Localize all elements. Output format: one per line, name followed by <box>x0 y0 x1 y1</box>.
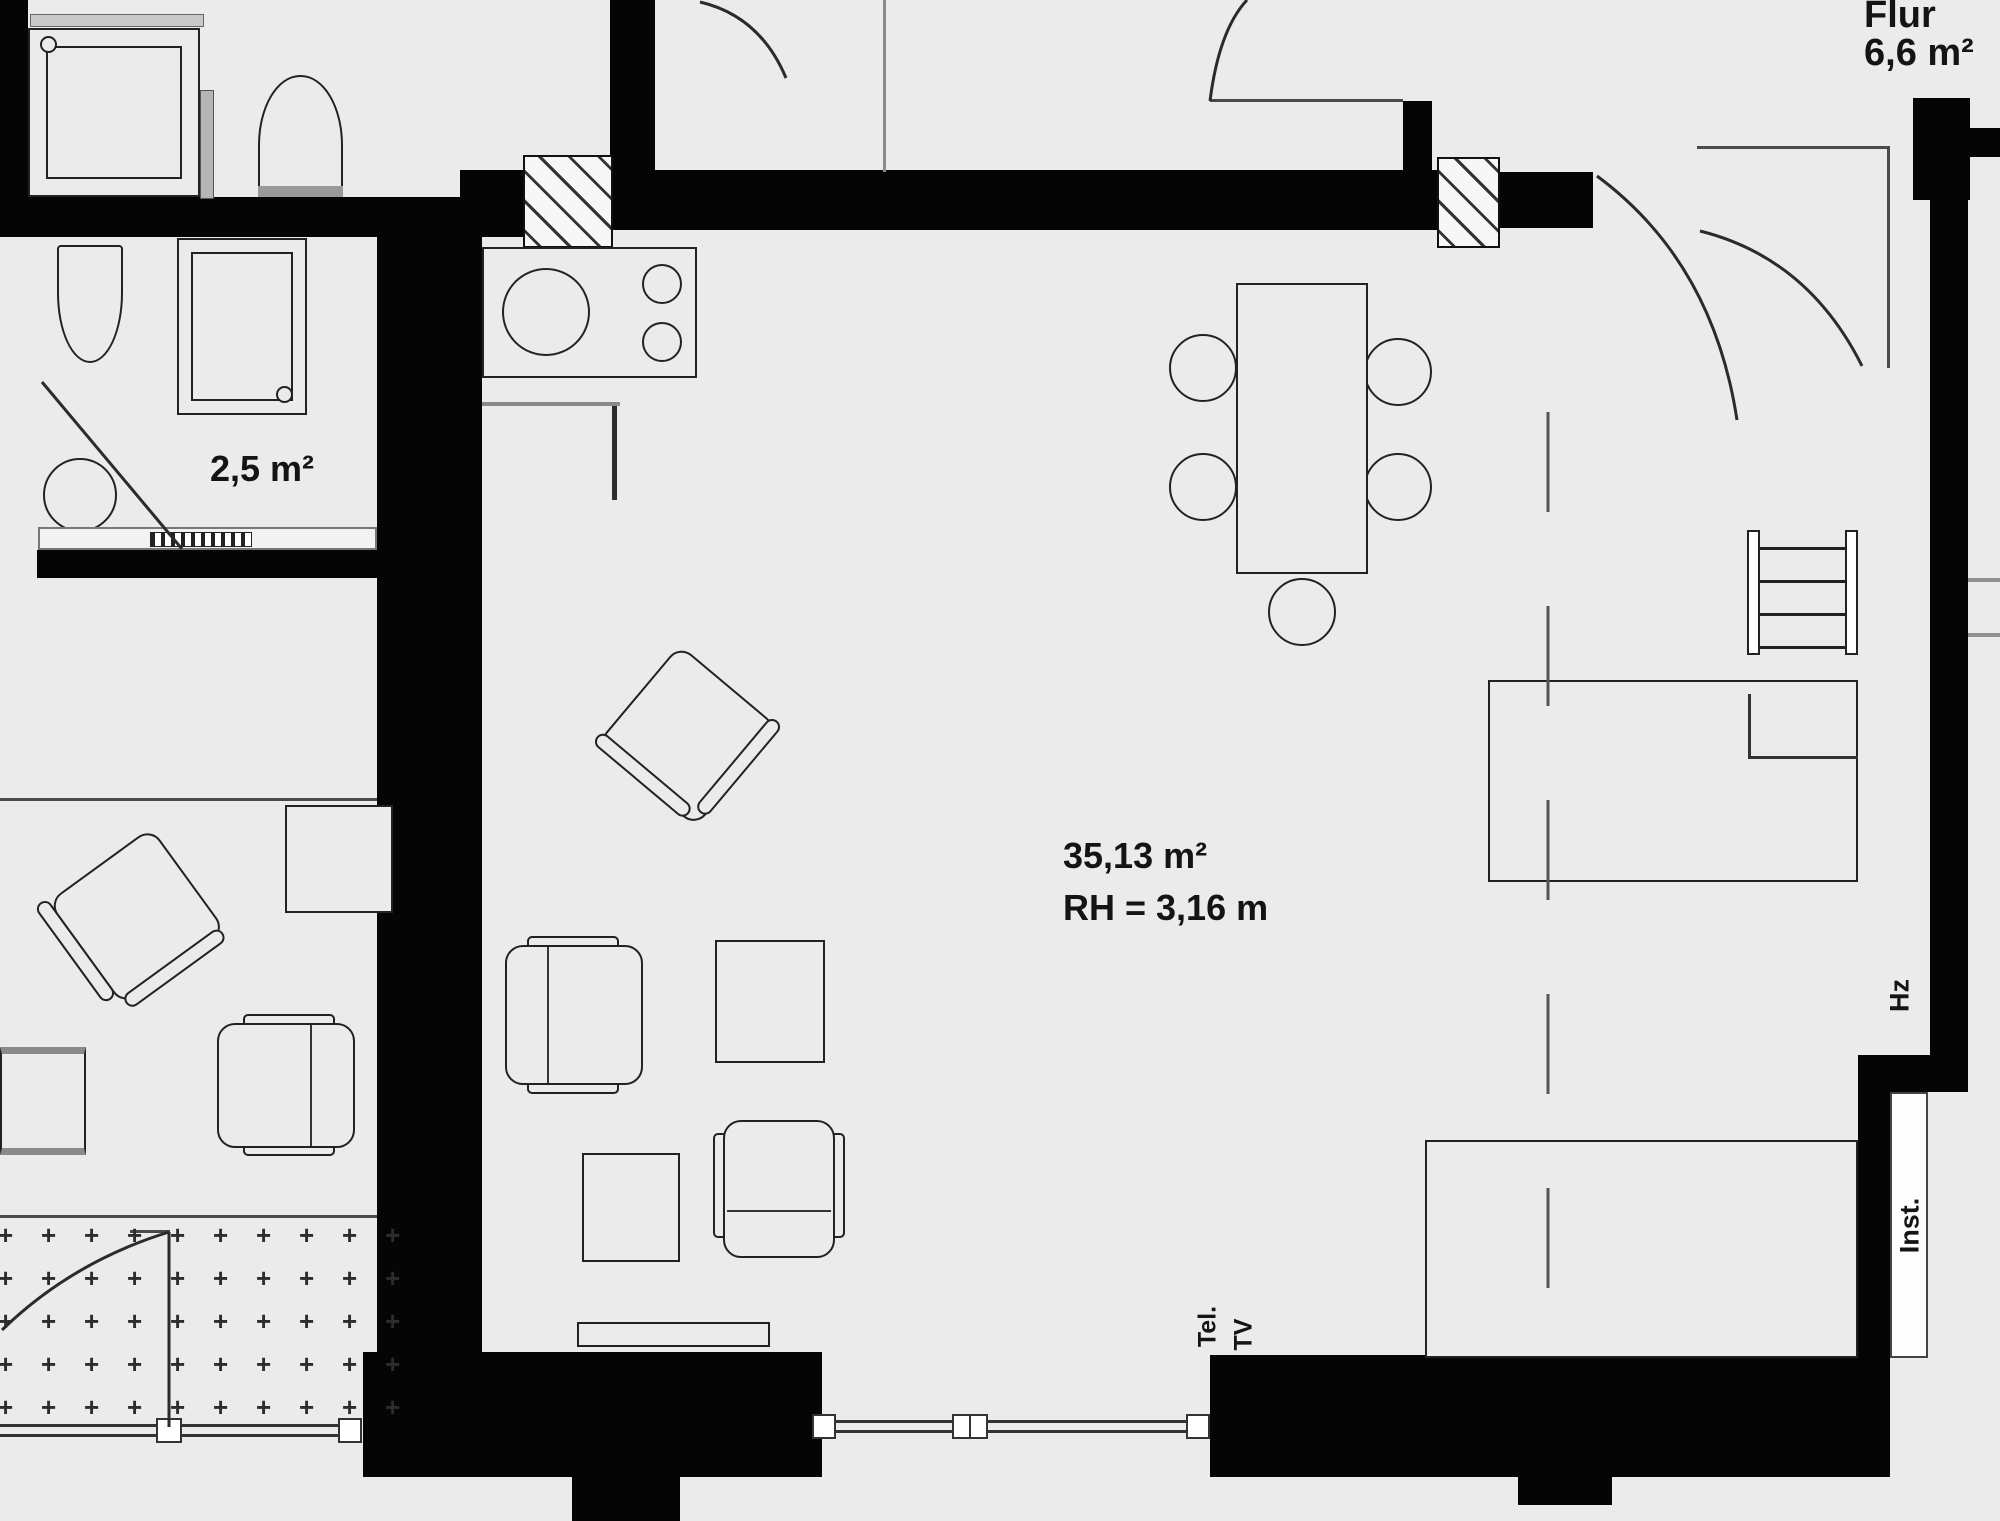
balcony-plus-mark: + <box>170 1308 185 1334</box>
wall-top-door-pier <box>1403 101 1432 172</box>
balcony-plus-mark: + <box>170 1394 185 1420</box>
balcony-plus-mark: + <box>41 1222 56 1248</box>
dining-chair <box>1169 334 1237 402</box>
room-label-living-area: 35,13 m² <box>1063 835 1207 877</box>
balcony-top-line <box>0 1215 377 1218</box>
wall-right-jog <box>1858 1055 1968 1092</box>
balcony-plus-mark: + <box>342 1394 357 1420</box>
dining-chair <box>1364 338 1432 406</box>
balcony-plus-mark: + <box>127 1351 142 1377</box>
balcony-plus-mark: + <box>41 1265 56 1291</box>
balcony-plus-mark: + <box>127 1222 142 1248</box>
balcony-plus-mark: + <box>84 1394 99 1420</box>
door-arc-upper-left-room <box>700 2 786 78</box>
balcony-plus-mark: + <box>213 1351 228 1377</box>
dining-chair <box>1169 453 1237 521</box>
balcony-plus-mark: + <box>84 1265 99 1291</box>
wall-left-edge <box>0 0 28 197</box>
toilet <box>57 245 123 363</box>
washbasin <box>43 458 117 532</box>
balcony-plus-mark: + <box>170 1351 185 1377</box>
balcony-plus-mark: + <box>299 1222 314 1248</box>
label-telephone: Tel. <box>1194 1301 1223 1353</box>
door-arc-top-room <box>1210 0 1247 101</box>
wall-bottom-step <box>1518 1477 1612 1505</box>
shower-tray-inner <box>46 46 182 179</box>
balcony-plus-mark: + <box>342 1265 357 1291</box>
balcony-plus-mark: + <box>170 1222 185 1248</box>
balcony-plus-mark: + <box>213 1265 228 1291</box>
balcony-plus-mark: + <box>299 1351 314 1377</box>
balcony-plus-mark: + <box>0 1351 13 1377</box>
window-mullion <box>1186 1414 1210 1439</box>
wall-flur-corner-block <box>1913 98 1970 200</box>
balcony-plus-mark: + <box>0 1222 13 1248</box>
balcony-plus-mark: + <box>41 1394 56 1420</box>
balcony-plus-mark: + <box>256 1265 271 1291</box>
label-heating: Hz <box>1885 974 1916 1018</box>
wall-shaft-left <box>1858 1092 1890 1358</box>
left-room-divider <box>0 798 377 801</box>
sideboard <box>577 1322 770 1347</box>
desk <box>285 805 393 913</box>
dining-chair <box>1364 453 1432 521</box>
shower-drain-icon <box>40 36 57 53</box>
door-arc-flur-living <box>1597 176 1737 420</box>
balcony-plus-mark: + <box>342 1351 357 1377</box>
balcony-plus-mark: + <box>342 1308 357 1334</box>
bed-headboard-line <box>1748 694 1751 758</box>
wall-kitchen-main <box>613 170 1437 230</box>
balcony-plus-mark: + <box>256 1394 271 1420</box>
balcony-floor-pattern: ++++++++++++++++++++++++++++++++++++++++… <box>0 1222 390 1422</box>
balcony-plus-mark: + <box>213 1222 228 1248</box>
balcony-plus-mark: + <box>0 1265 13 1291</box>
room-label-hall-area: 6,6 m² <box>1864 32 1974 75</box>
flur-room-line-v <box>1887 146 1890 368</box>
wall-flur-left <box>1500 172 1593 228</box>
dining-chair <box>1268 578 1336 646</box>
balcony-plus-mark: + <box>256 1308 271 1334</box>
flur-room-line-h <box>1697 146 1889 149</box>
shower-tray-inner <box>191 252 293 401</box>
window-mullion <box>812 1414 836 1439</box>
room-label-living-height: RH = 3,16 m <box>1063 887 1268 929</box>
label-tv: TV <box>1230 1309 1259 1361</box>
table <box>0 1047 86 1155</box>
balcony-plus-mark: + <box>256 1351 271 1377</box>
room-label-bath-area: 2,5 m² <box>210 448 314 490</box>
top-door-chord <box>1210 99 1403 102</box>
dining-table <box>1236 283 1368 574</box>
balcony-plus-mark: + <box>127 1265 142 1291</box>
balcony-plus-mark: + <box>127 1308 142 1334</box>
balcony-plus-mark: + <box>342 1222 357 1248</box>
bed <box>1425 1140 1858 1358</box>
window-bottom-center <box>822 1420 1210 1433</box>
wall-bottom-pier <box>572 1477 680 1521</box>
balcony-plus-mark: + <box>385 1351 400 1377</box>
balcony-plus-mark: + <box>84 1308 99 1334</box>
armchair-rotated <box>575 627 800 852</box>
balcony-plus-mark: + <box>84 1351 99 1377</box>
shower-drain-icon <box>276 386 293 403</box>
balcony-plus-mark: + <box>0 1394 13 1420</box>
wall-kitchen-left <box>460 170 523 230</box>
bed <box>1488 680 1858 882</box>
floor-plan: ++++++++++++++++++++++++++++++++++++++++… <box>0 0 2000 1521</box>
shower-screen <box>30 14 204 27</box>
wall-bottom-right <box>1210 1355 1890 1477</box>
balcony-plus-mark: + <box>84 1222 99 1248</box>
label-installation: Inst. <box>1895 1198 1926 1254</box>
window-mullion-double <box>952 1414 988 1439</box>
balcony-plus-mark: + <box>213 1308 228 1334</box>
armchair-rotated <box>26 806 249 1029</box>
balcony-plus-mark: + <box>299 1265 314 1291</box>
top-room-partition <box>883 0 886 172</box>
wall-bottom-left <box>363 1352 822 1477</box>
balcony-plus-mark: + <box>0 1308 13 1334</box>
balcony-plus-mark: + <box>127 1394 142 1420</box>
wall-right-outer <box>1930 200 1968 1058</box>
outside-line-2 <box>1968 633 2000 637</box>
bed-headboard-line <box>1748 756 1858 759</box>
side-table <box>582 1153 680 1262</box>
toilet-base <box>258 186 343 197</box>
balcony-plus-mark: + <box>385 1394 400 1420</box>
radiator <box>150 532 252 547</box>
balcony-plus-mark: + <box>385 1308 400 1334</box>
balcony-plus-mark: + <box>299 1308 314 1334</box>
balcony-plus-mark: + <box>213 1394 228 1420</box>
balcony-plus-mark: + <box>299 1394 314 1420</box>
wall-bath-bottom <box>37 550 377 578</box>
balcony-plus-mark: + <box>385 1265 400 1291</box>
burner-small <box>642 322 682 362</box>
balcony-plus-mark: + <box>385 1222 400 1248</box>
toilet <box>258 75 343 197</box>
balcony-plus-mark: + <box>170 1265 185 1291</box>
kitchen-jamb-v <box>612 406 617 500</box>
balcony-plus-mark: + <box>41 1351 56 1377</box>
hatched-pier-flur <box>1437 157 1500 248</box>
kitchen-jamb-h <box>482 402 620 406</box>
door-arc-flur-right <box>1700 231 1862 366</box>
wall-flur-arm <box>1968 128 2000 157</box>
outside-line-1 <box>1968 578 2000 582</box>
burner-small <box>642 264 682 304</box>
side-table <box>715 940 825 1063</box>
shower-partition <box>200 90 214 199</box>
balcony-plus-mark: + <box>256 1222 271 1248</box>
burner-large <box>502 268 590 356</box>
balcony-plus-mark: + <box>41 1308 56 1334</box>
hatched-pier-kitchen <box>523 155 613 248</box>
wall-column-bath-kitchen <box>377 230 482 578</box>
